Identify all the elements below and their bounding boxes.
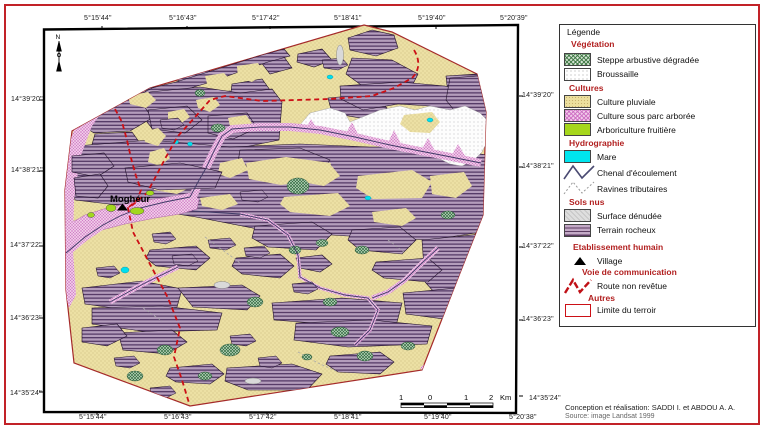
svg-text:N: N [56, 34, 61, 41]
svg-text:0: 0 [428, 393, 432, 402]
svg-text:2: 2 [489, 393, 493, 402]
svg-text:Moghéur: Moghéur [110, 194, 150, 205]
svg-text:1: 1 [464, 393, 468, 402]
svg-text:Km: Km [500, 393, 511, 402]
svg-text:1: 1 [399, 393, 403, 402]
